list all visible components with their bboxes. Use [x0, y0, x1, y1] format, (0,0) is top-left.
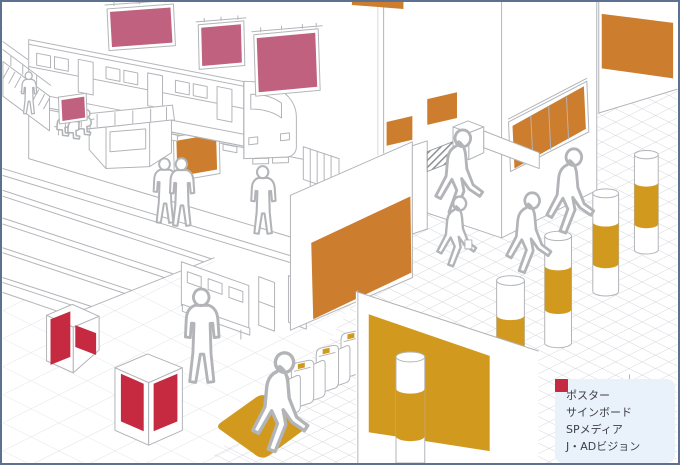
pillar-wrap-2	[593, 189, 619, 296]
legend-item-sp-media: SPメディア	[566, 421, 669, 438]
legend-label-j-ad-vision: J・ADビジョン	[566, 441, 640, 452]
billboard-2	[196, 16, 246, 70]
legend-label-sp-media: SPメディア	[566, 424, 623, 435]
billboard-1	[105, 2, 175, 51]
pillar-wrap-5	[396, 352, 425, 463]
legend-item-poster: ポスター	[566, 387, 669, 404]
legend-item-signboard: サインボード	[566, 404, 669, 421]
legend-item-j-ad-vision: J・ADビジョン	[566, 438, 669, 455]
billboard-3	[252, 23, 322, 96]
j-ad-vision-color-swatch	[555, 379, 568, 392]
legend-label-signboard: サインボード	[566, 407, 632, 418]
poster-panel-top-right	[602, 14, 673, 78]
j-ad-vision-stand	[115, 354, 182, 445]
pillar-wrap-1	[634, 151, 658, 255]
legend-label-poster: ポスター	[566, 390, 610, 401]
legend: ポスター サインボード SPメディア J・ADビジョン	[555, 379, 675, 463]
station-media-map: ポスター サインボード SPメディア J・ADビジョン	[0, 0, 680, 465]
